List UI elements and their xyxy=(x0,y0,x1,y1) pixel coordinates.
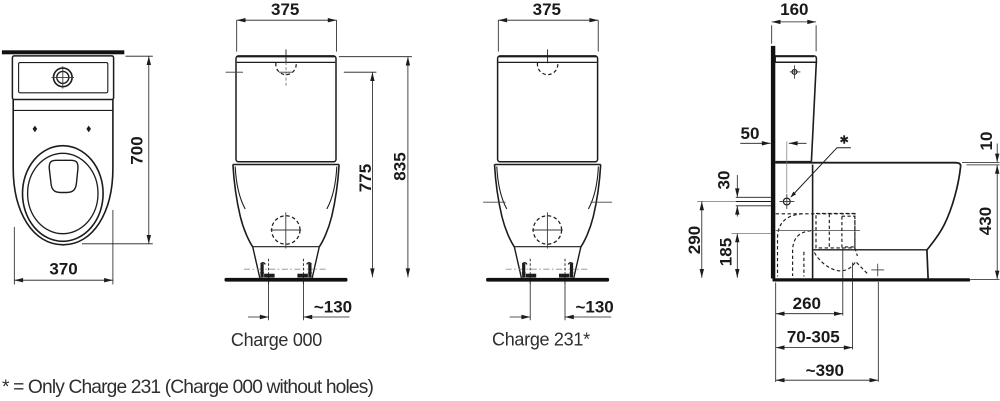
svg-text:Charge 231*: Charge 231* xyxy=(492,330,590,350)
svg-text:430: 430 xyxy=(976,207,995,235)
svg-text:* = Only Charge 231 (Charge 00: * = Only Charge 231 (Charge 000 without … xyxy=(2,377,373,398)
svg-text:375: 375 xyxy=(271,0,299,19)
svg-text:160: 160 xyxy=(780,0,808,19)
svg-text:70-305: 70-305 xyxy=(787,328,840,347)
svg-text:50: 50 xyxy=(741,124,760,143)
svg-text:835: 835 xyxy=(390,152,409,180)
svg-text:375: 375 xyxy=(533,0,561,19)
svg-text:~130: ~130 xyxy=(314,298,352,317)
svg-text:10: 10 xyxy=(977,132,996,151)
svg-text:260: 260 xyxy=(793,294,821,313)
svg-text:30: 30 xyxy=(715,171,734,190)
svg-text:775: 775 xyxy=(356,164,375,192)
svg-text:370: 370 xyxy=(49,260,77,279)
svg-text:185: 185 xyxy=(717,238,736,266)
svg-text:Charge 000: Charge 000 xyxy=(231,330,322,350)
svg-text:~130: ~130 xyxy=(575,298,613,317)
svg-text:~390: ~390 xyxy=(806,361,844,380)
svg-text:290: 290 xyxy=(685,226,704,254)
svg-text:700: 700 xyxy=(128,136,147,164)
